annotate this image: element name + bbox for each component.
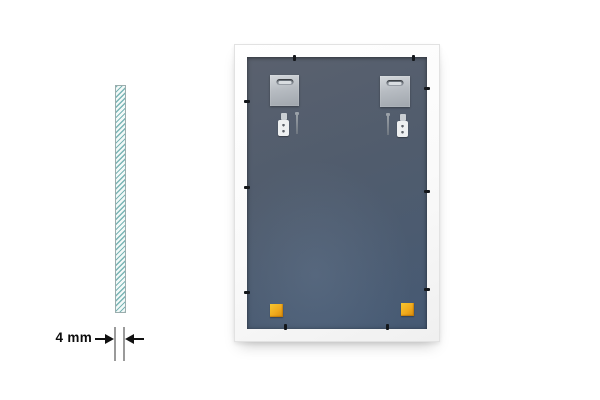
product-image: 4 mm [0, 0, 600, 400]
glass-cross-section [115, 85, 126, 313]
corner-pad [401, 303, 414, 316]
retaining-clip [284, 324, 287, 330]
hanger-plate-right [380, 76, 410, 107]
hanger-plate-left [270, 75, 299, 106]
dimension-extension-line-right [123, 327, 125, 361]
retaining-clip [424, 87, 430, 90]
retaining-clip [244, 291, 250, 294]
wall-anchor-icon [397, 121, 408, 137]
mirror-frame-back [234, 44, 440, 342]
retaining-clip [424, 288, 430, 291]
slot-highlight [389, 82, 402, 85]
slot-highlight [278, 81, 291, 84]
screw-icon [387, 115, 389, 135]
wall-anchor-cap [400, 114, 406, 121]
arrow-left-icon [125, 334, 134, 344]
retaining-clip [386, 324, 389, 330]
thickness-label: 4 mm [38, 330, 92, 345]
wall-anchor-cap [281, 113, 287, 120]
wall-anchor-icon [278, 120, 289, 136]
retaining-clip [244, 100, 250, 103]
hanger-slot-icon [276, 79, 293, 85]
hanger-slot-icon [387, 80, 404, 86]
screw-icon [296, 114, 298, 134]
dimension-extension-line-left [114, 327, 116, 361]
corner-pad [270, 304, 283, 317]
retaining-clip [412, 55, 415, 61]
arrow-right-icon [105, 334, 114, 344]
retaining-clip [293, 55, 296, 61]
retaining-clip [424, 190, 430, 193]
retaining-clip [244, 186, 250, 189]
